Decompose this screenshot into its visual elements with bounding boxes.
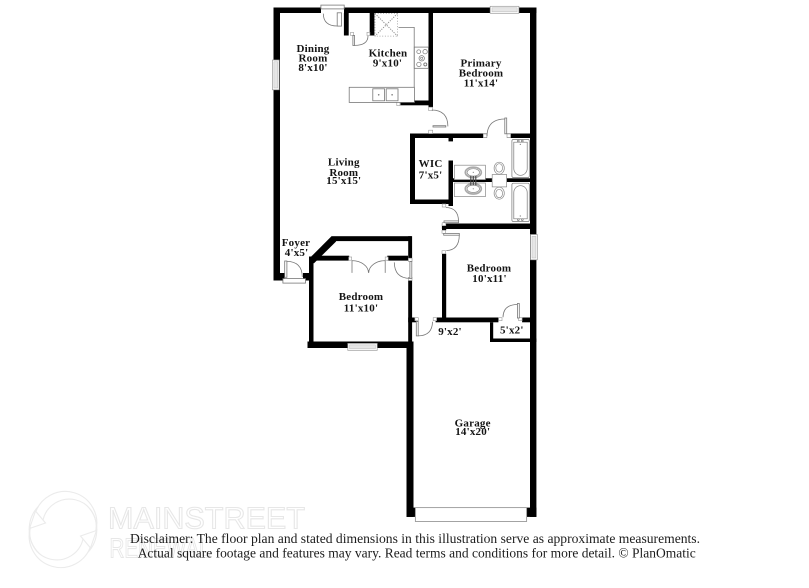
svg-text:4'x5': 4'x5'	[285, 247, 309, 259]
svg-text:Bedroom: Bedroom	[339, 291, 384, 303]
svg-text:5'x2': 5'x2'	[500, 325, 524, 337]
svg-text:11'x10': 11'x10'	[344, 303, 378, 315]
svg-text:15'x15': 15'x15'	[326, 175, 361, 187]
svg-text:7'x5': 7'x5'	[419, 170, 443, 182]
svg-text:Disclaimer: The floor plan and: Disclaimer: The floor plan and stated di…	[130, 531, 700, 546]
svg-text:9'x2': 9'x2'	[438, 326, 462, 338]
svg-text:14'x20': 14'x20'	[455, 426, 490, 438]
svg-text:8'x10': 8'x10'	[298, 62, 327, 74]
svg-text:10'x11': 10'x11'	[472, 273, 506, 285]
svg-text:WIC: WIC	[419, 158, 443, 170]
svg-text:Actual square footage and feat: Actual square footage and features may v…	[138, 545, 696, 560]
svg-text:11'x14': 11'x14'	[464, 77, 498, 89]
svg-text:9'x10': 9'x10'	[373, 58, 402, 70]
